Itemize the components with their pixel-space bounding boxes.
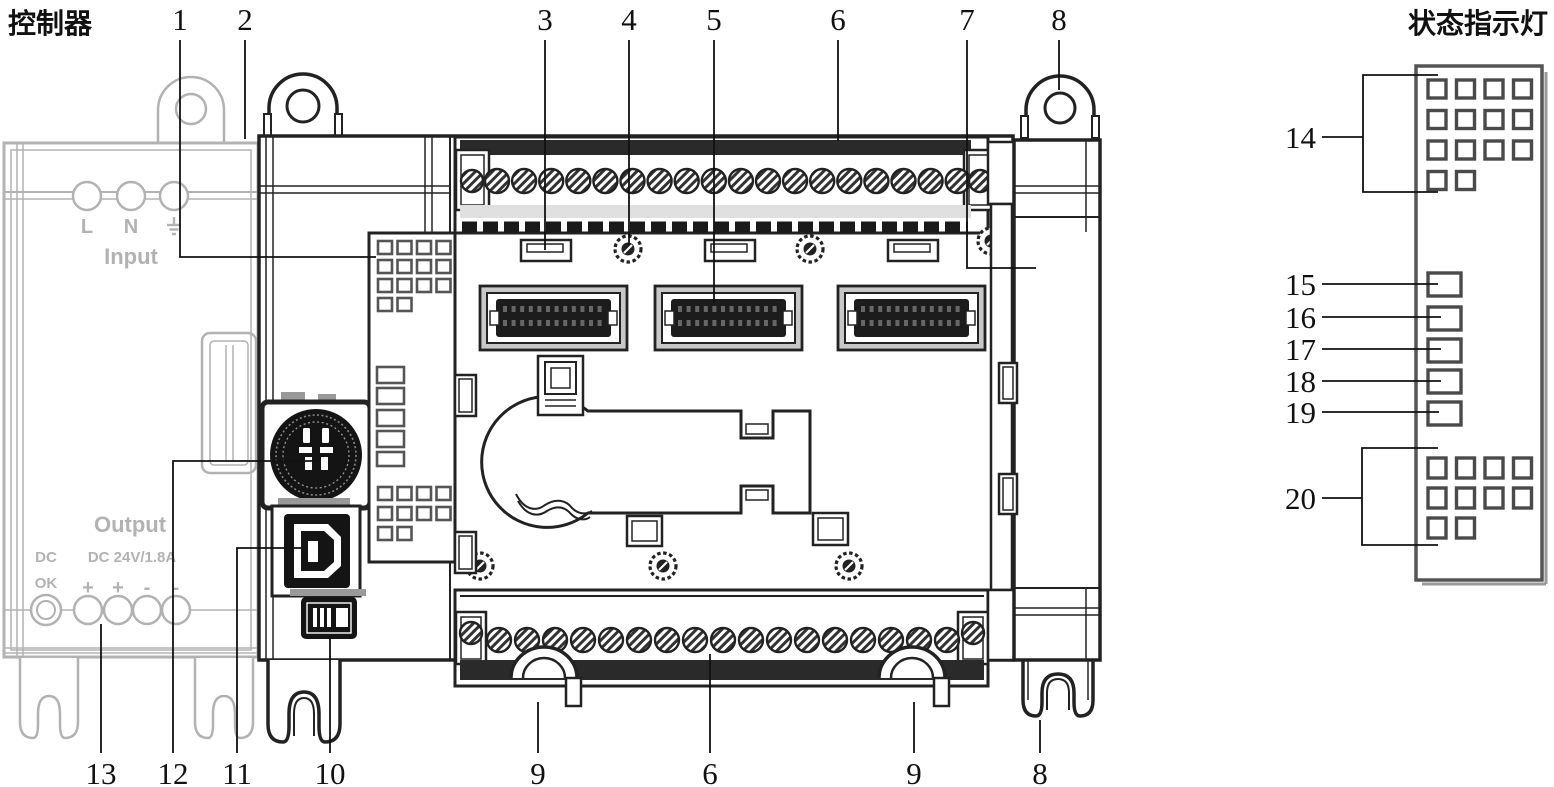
dc-ok-label-2: OK — [35, 575, 58, 592]
expansion-connectors — [480, 286, 985, 350]
dc-ok-label-1: DC — [35, 549, 57, 566]
callout-label-11: 11 — [222, 756, 252, 787]
callout-label-14: 14 — [1285, 120, 1317, 155]
callout-label-13: 13 — [86, 756, 117, 787]
callout-label-3: 3 — [537, 2, 553, 37]
callout-label-20: 20 — [1285, 481, 1316, 516]
callout-label-1: 1 — [172, 2, 188, 37]
ps2-port — [262, 392, 370, 508]
usb-b-port — [272, 498, 360, 596]
callout-label-18: 18 — [1285, 364, 1316, 399]
terminal-l-label: L — [81, 216, 93, 238]
output-label: Output — [94, 512, 167, 537]
callout-label-17: 17 — [1285, 332, 1316, 367]
callout-label-12: 12 — [158, 756, 189, 787]
latch-clip — [538, 356, 583, 415]
mounting-hole-top-left — [287, 90, 319, 122]
callout-label-19: 19 — [1285, 395, 1316, 430]
callout-label-2: 2 — [237, 2, 253, 37]
title-status-leds: 状态指示灯 — [1408, 8, 1548, 39]
terminal-block-top — [455, 137, 996, 233]
rating-label: DC 24V/1.8A — [88, 549, 177, 566]
output-terminal-3 — [133, 596, 161, 624]
output-terminal-2 — [104, 596, 132, 624]
led-singles — [377, 367, 404, 466]
terminal-n-label: N — [124, 216, 138, 238]
callout-label-9l: 9 — [530, 756, 546, 787]
terminal-cover-strip-top — [460, 140, 971, 155]
callout-label-15: 15 — [1285, 267, 1316, 302]
mounting-hole-top-right — [1045, 93, 1075, 123]
dc-ok-led — [31, 595, 61, 625]
callout-label-8t: 8 — [1051, 2, 1067, 37]
output-terminal-1 — [74, 596, 102, 624]
status-indicator-panel-enlarged — [1416, 66, 1546, 584]
terminal-n — [117, 182, 145, 210]
callout-label-5: 5 — [706, 2, 722, 37]
plc-diagram-figure: L N Input Output DC OK DC 24V/1.8A + + — [0, 0, 1554, 787]
power-supply-module: L N Input Output DC OK DC 24V/1.8A + + — [4, 77, 258, 738]
input-label: Input — [104, 244, 158, 269]
callout-label-9r: 9 — [906, 756, 922, 787]
psu-mounting-tab-bottom-right — [195, 658, 253, 738]
callout-label-8b: 8 — [1032, 756, 1048, 787]
output-terminal-4 — [162, 596, 190, 624]
callout-label-4: 4 — [621, 2, 637, 37]
terminal-l — [73, 182, 101, 210]
psu-mounting-tab-bottom-left — [20, 658, 78, 738]
plc-front-view: L N Input Output DC OK DC 24V/1.8A + + — [0, 0, 1554, 787]
callout-label-16: 16 — [1285, 300, 1316, 335]
callout-label-7: 7 — [959, 2, 975, 37]
controller-unit — [259, 74, 1100, 742]
psu-mounting-tab-top — [158, 77, 224, 143]
callout-label-6t: 6 — [830, 2, 846, 37]
terminal-ground — [160, 182, 188, 210]
right-side-panel — [999, 140, 1100, 660]
callout-label-10: 10 — [315, 756, 346, 787]
title-controller: 控制器 — [8, 8, 93, 39]
mounting-tab-bottom-right — [1023, 660, 1093, 716]
status-led-panel — [369, 233, 455, 562]
callout-label-6b: 6 — [702, 756, 718, 787]
